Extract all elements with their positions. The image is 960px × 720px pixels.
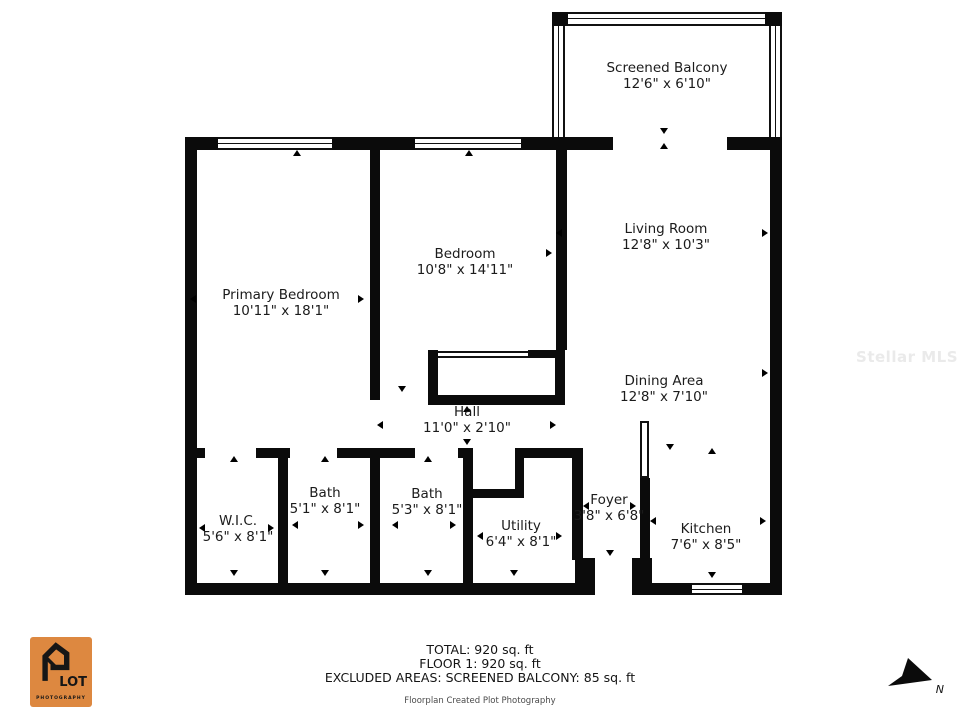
window-icon bbox=[218, 137, 332, 150]
dimension-tick-icon bbox=[321, 456, 329, 462]
credit-text: Floorplan Created Plot Photography bbox=[0, 696, 960, 706]
room-label-screened-balcony: Screened Balcony 12'6" x 6'10" bbox=[606, 60, 727, 92]
room-label-dining-area: Dining Area 12'8" x 7'10" bbox=[620, 373, 708, 405]
wall bbox=[463, 448, 473, 583]
wall bbox=[528, 350, 565, 358]
dimension-tick-icon bbox=[708, 572, 716, 578]
dimension-tick-icon bbox=[760, 517, 766, 525]
wall bbox=[742, 583, 782, 595]
wall bbox=[552, 12, 568, 26]
north-label: N bbox=[936, 683, 944, 696]
window-icon bbox=[692, 583, 742, 595]
dimension-tick-icon bbox=[230, 456, 238, 462]
wall bbox=[575, 558, 595, 583]
wall bbox=[632, 583, 692, 595]
dimension-tick-icon bbox=[762, 229, 768, 237]
wall bbox=[765, 12, 782, 26]
room-name: Bath bbox=[290, 485, 361, 501]
wall bbox=[370, 448, 380, 583]
dimension-tick-icon bbox=[463, 439, 471, 445]
room-name: Kitchen bbox=[671, 521, 742, 537]
dimension-tick-icon bbox=[230, 570, 238, 576]
dimension-tick-icon bbox=[556, 229, 562, 237]
room-dimensions: 3'8" x 6'8" bbox=[574, 508, 645, 524]
dimension-tick-icon bbox=[398, 386, 406, 392]
logo-text-lot: LOT bbox=[59, 675, 87, 690]
room-name: Bedroom bbox=[417, 246, 514, 262]
floor-area-text: FLOOR 1: 920 sq. ft bbox=[0, 656, 960, 671]
dimension-tick-icon bbox=[556, 532, 562, 540]
dimension-tick-icon bbox=[292, 521, 298, 529]
dimension-tick-icon bbox=[666, 444, 674, 450]
floorplan bbox=[0, 0, 960, 720]
logo-text-photography: PHOTOGRAPHY bbox=[30, 696, 92, 701]
dimension-tick-icon bbox=[762, 369, 768, 377]
room-dimensions: 11'0" x 2'10" bbox=[423, 420, 511, 436]
room-label-foyer: Foyer 3'8" x 6'8" bbox=[574, 492, 645, 524]
dimension-tick-icon bbox=[190, 295, 196, 303]
dimension-tick-icon bbox=[424, 570, 432, 576]
wall bbox=[556, 150, 567, 350]
dimension-tick-icon bbox=[550, 421, 556, 429]
wall bbox=[521, 137, 613, 150]
window-icon bbox=[415, 137, 521, 150]
plot-photography-logo: LOT PHOTOGRAPHY bbox=[30, 637, 92, 707]
wall bbox=[770, 137, 782, 595]
excluded-area-text: EXCLUDED AREAS: SCREENED BALCONY: 85 sq.… bbox=[0, 670, 960, 685]
north-arrow-icon: N bbox=[886, 656, 946, 698]
room-label-bath-1: Bath 5'1" x 8'1" bbox=[290, 485, 361, 517]
room-name: W.I.C. bbox=[203, 513, 274, 529]
closet-shelf-icon bbox=[438, 351, 528, 358]
room-label-wic: W.I.C. 5'6" x 8'1" bbox=[203, 513, 274, 545]
dimension-tick-icon bbox=[606, 550, 614, 556]
wall bbox=[515, 448, 524, 498]
dimension-tick-icon bbox=[465, 150, 473, 156]
wall bbox=[332, 137, 415, 150]
room-dimensions: 5'6" x 8'1" bbox=[203, 529, 274, 545]
dimension-tick-icon bbox=[293, 150, 301, 156]
wall bbox=[185, 583, 595, 595]
room-label-living-room: Living Room 12'8" x 10'3" bbox=[622, 221, 710, 253]
dimension-tick-icon bbox=[546, 249, 552, 257]
screen-wall-icon bbox=[552, 26, 565, 137]
door-leaf-icon bbox=[640, 421, 649, 478]
room-dimensions: 12'8" x 10'3" bbox=[622, 237, 710, 253]
dimension-tick-icon bbox=[358, 521, 364, 529]
dimension-tick-icon bbox=[392, 521, 398, 529]
dimension-tick-icon bbox=[660, 128, 668, 134]
dimension-tick-icon bbox=[510, 570, 518, 576]
room-name: Bath bbox=[392, 486, 463, 502]
wall bbox=[185, 137, 197, 595]
room-name: Dining Area bbox=[620, 373, 708, 389]
room-dimensions: 12'6" x 6'10" bbox=[606, 76, 727, 92]
room-name: Hall bbox=[423, 404, 511, 420]
total-area-text: TOTAL: 920 sq. ft bbox=[0, 642, 960, 657]
room-dimensions: 10'11" x 18'1" bbox=[222, 303, 340, 319]
dimension-tick-icon bbox=[477, 532, 483, 540]
room-label-primary-bedroom: Primary Bedroom 10'11" x 18'1" bbox=[222, 287, 340, 319]
screen-wall-icon bbox=[568, 12, 765, 26]
room-name: Primary Bedroom bbox=[222, 287, 340, 303]
room-dimensions: 6'4" x 8'1" bbox=[486, 534, 557, 550]
dimension-tick-icon bbox=[424, 456, 432, 462]
room-name: Foyer bbox=[574, 492, 645, 508]
dimension-tick-icon bbox=[660, 143, 668, 149]
dimension-tick-icon bbox=[358, 295, 364, 303]
room-label-utility: Utility 6'4" x 8'1" bbox=[486, 518, 557, 550]
wall bbox=[278, 448, 288, 583]
room-label-kitchen: Kitchen 7'6" x 8'5" bbox=[671, 521, 742, 553]
wall bbox=[185, 448, 205, 458]
wall bbox=[555, 350, 565, 405]
room-name: Screened Balcony bbox=[606, 60, 727, 76]
room-dimensions: 5'3" x 8'1" bbox=[392, 502, 463, 518]
screen-wall-icon bbox=[769, 26, 782, 137]
wall bbox=[370, 150, 380, 400]
room-name: Utility bbox=[486, 518, 557, 534]
dimension-tick-icon bbox=[650, 517, 656, 525]
room-dimensions: 12'8" x 7'10" bbox=[620, 389, 708, 405]
room-label-hall: Hall 11'0" x 2'10" bbox=[423, 404, 511, 436]
room-name: Living Room bbox=[622, 221, 710, 237]
stellar-mls-watermark: Stellar MLS bbox=[856, 348, 958, 366]
room-dimensions: 10'8" x 14'11" bbox=[417, 262, 514, 278]
room-dimensions: 5'1" x 8'1" bbox=[290, 501, 361, 517]
dimension-tick-icon bbox=[377, 421, 383, 429]
dimension-tick-icon bbox=[708, 448, 716, 454]
room-label-bedroom: Bedroom 10'8" x 14'11" bbox=[417, 246, 514, 278]
room-label-bath-2: Bath 5'3" x 8'1" bbox=[392, 486, 463, 518]
room-dimensions: 7'6" x 8'5" bbox=[671, 537, 742, 553]
dimension-tick-icon bbox=[321, 570, 329, 576]
dimension-tick-icon bbox=[450, 521, 456, 529]
